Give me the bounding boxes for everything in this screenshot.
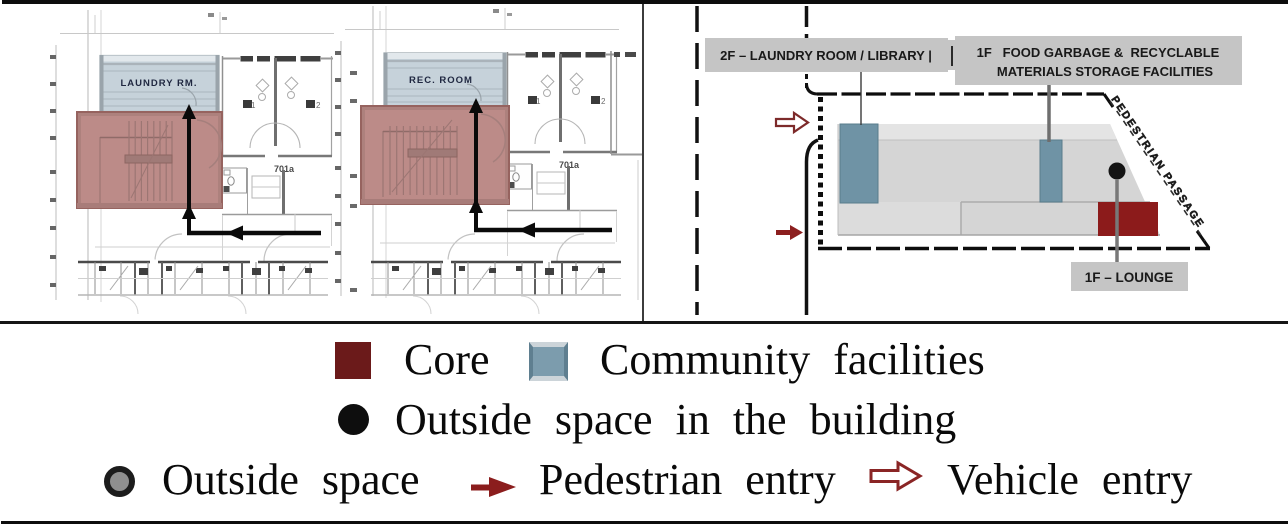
svg-text:LAUNDRY RM.: LAUNDRY RM. [121, 78, 198, 89]
svg-text:MATERIALS STORAGE FACILITIES: MATERIALS STORAGE FACILITIES [997, 64, 1214, 79]
svg-text:2F – LAUNDRY ROOM / LIBRARY |: 2F – LAUNDRY ROOM / LIBRARY | [720, 48, 932, 63]
svg-text:1F – LOUNGE: 1F – LOUNGE [1085, 270, 1174, 285]
svg-text:1F FOOD GARBAGE & RECYCLABL: 1F FOOD GARBAGE & RECYCLABLE [977, 45, 1220, 60]
svg-text:REC. ROOM: REC. ROOM [409, 75, 473, 86]
